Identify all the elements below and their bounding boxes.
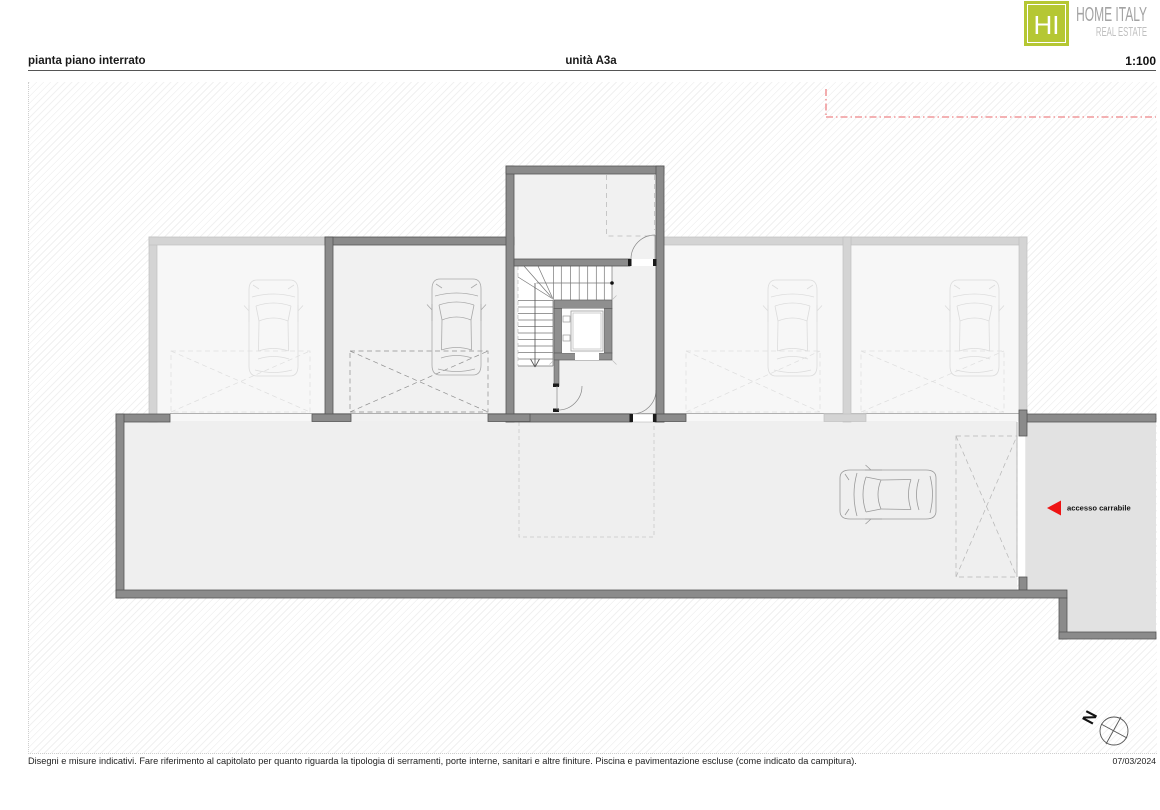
svg-text:N: N	[1079, 708, 1102, 728]
svg-text:accesso carrabile: accesso carrabile	[1067, 504, 1131, 513]
